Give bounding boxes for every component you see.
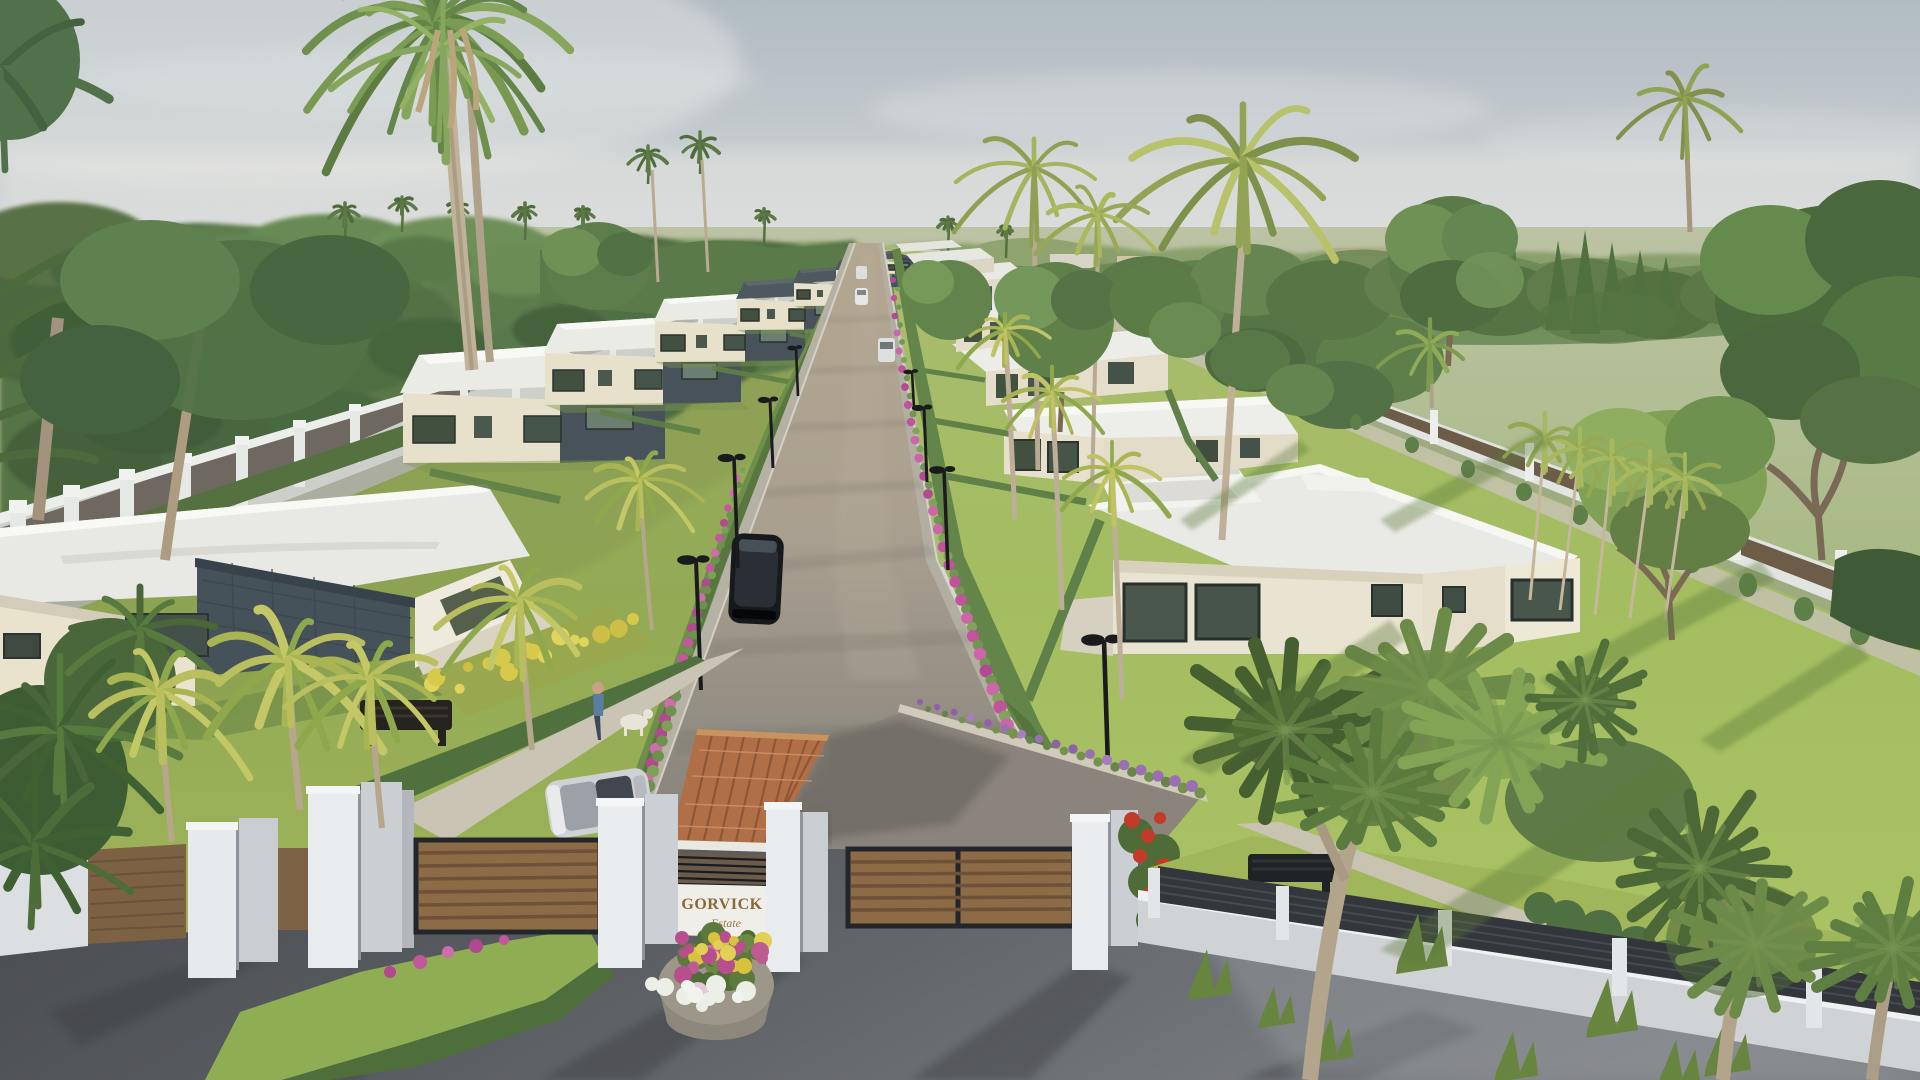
svg-text:GORVICK: GORVICK bbox=[681, 896, 762, 913]
